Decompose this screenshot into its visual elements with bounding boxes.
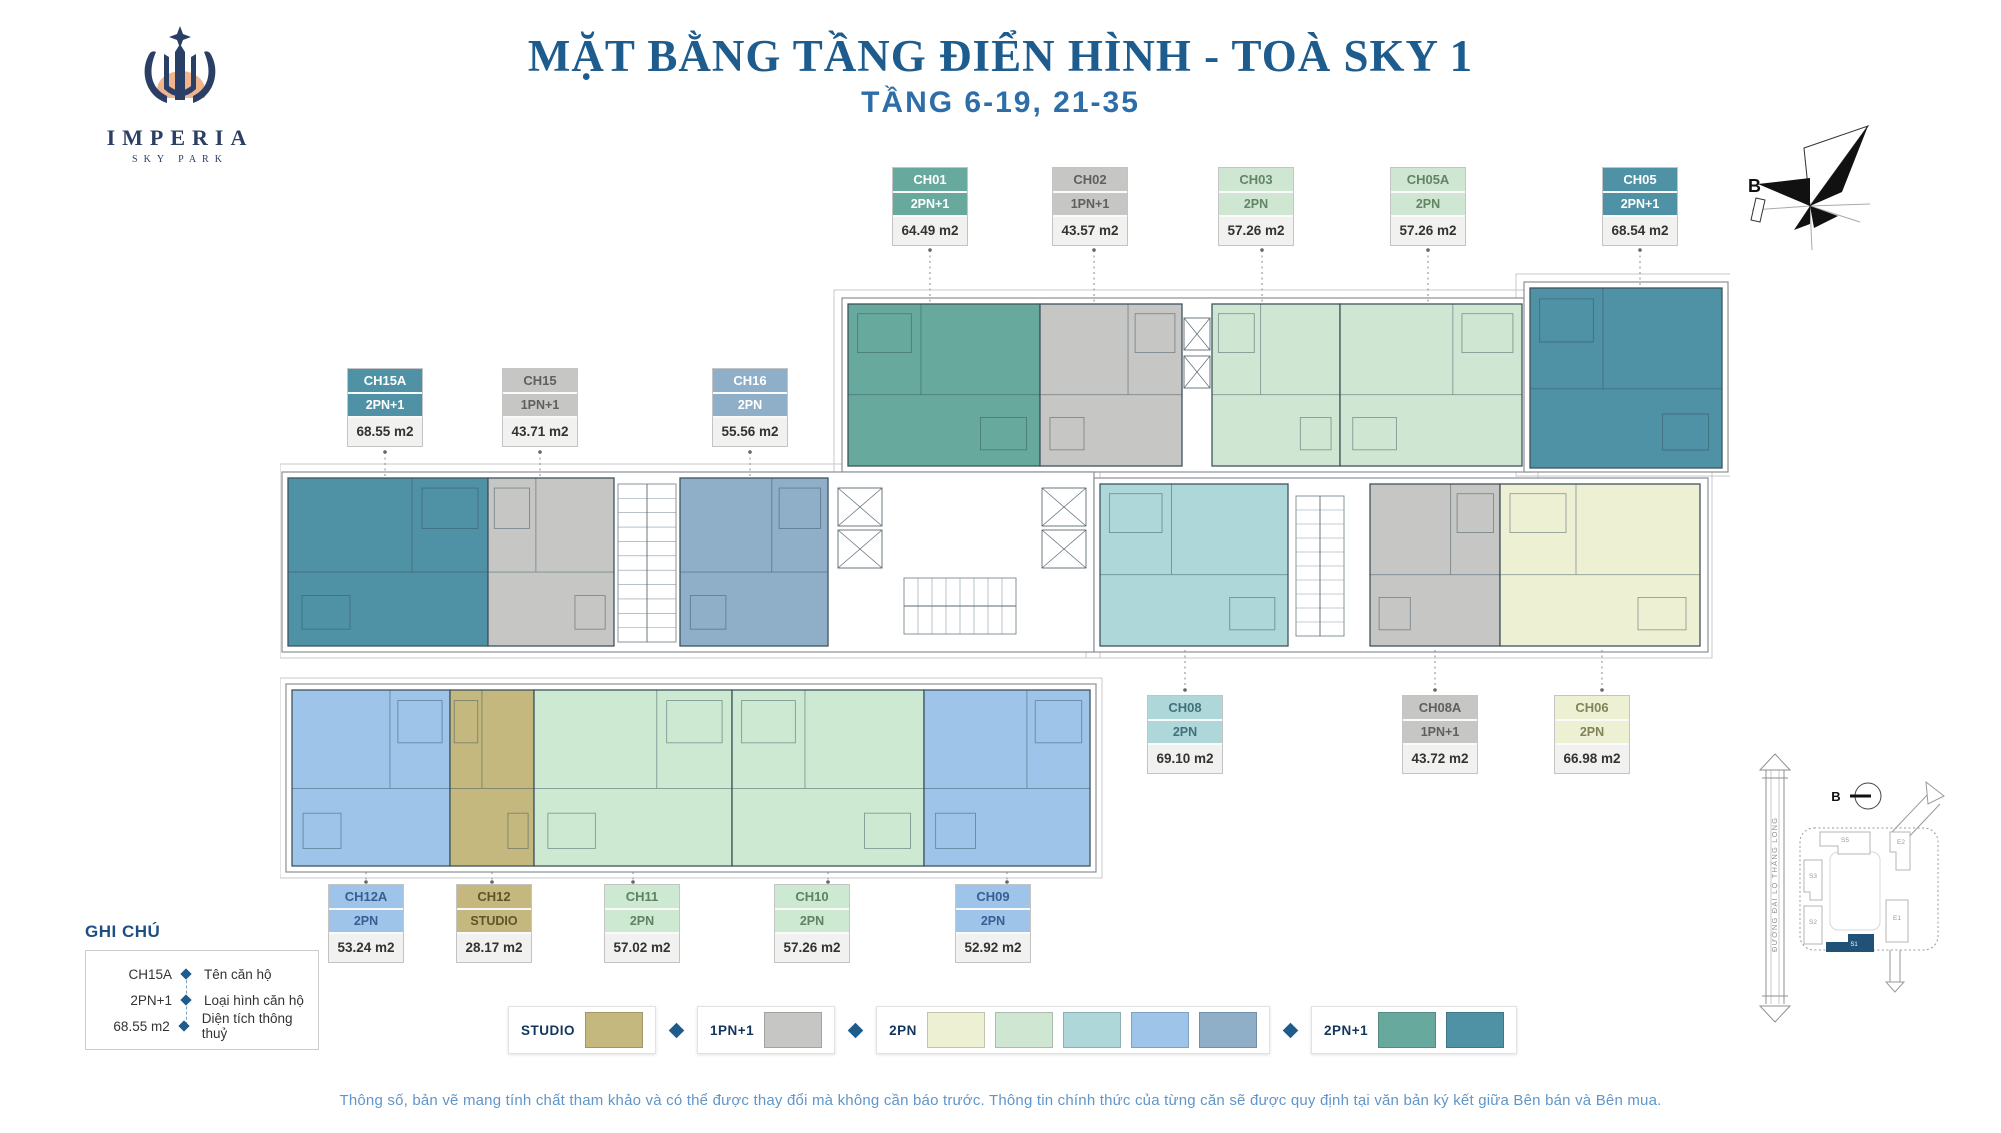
legend-note-label: Diện tích thông thuỷ [202,1011,318,1041]
unit-label-CH16: CH162PN55.56 m2 [712,368,788,447]
site-podium [1830,852,1880,930]
plan-unit-CH10 [732,690,924,866]
svg-text:S3: S3 [1809,873,1817,880]
leader-dot [748,450,752,454]
compass-pointer [1751,198,1765,222]
plan-unit-CH09 [924,690,1090,866]
unit-type: 2PN+1 [348,392,422,416]
unit-code: CH08 [1148,696,1222,719]
unit-type: 1PN+1 [1403,719,1477,743]
unit-type: 2PN [1555,719,1629,743]
plan-unit-CH01 [848,304,1040,466]
legend-group-label: 1PN+1 [710,1023,754,1038]
unit-label-CH11: CH112PN57.02 m2 [604,884,680,963]
compass-rose: B [1748,118,1878,258]
legend-note-value: 68.55 m2 [100,1019,170,1034]
page-title: MẶT BẰNG TẦNG ĐIỂN HÌNH - TOÀ SKY 1 [0,30,2001,82]
legend-notes: GHI CHÚ CH15A Tên căn hộ 2PN+1 Loại hình… [85,922,319,1050]
legend-group-2pn: 2PN [876,1006,1270,1054]
legend-group-label: 2PN+1 [1324,1023,1368,1038]
legend-note-label: Tên căn hộ [204,967,272,982]
unit-type: 2PN [605,908,679,932]
plan-unit-CH15 [488,478,614,646]
legend-color-swatch [1378,1012,1436,1048]
plan-unit-CH08A [1370,484,1500,646]
unit-label-CH06: CH062PN66.98 m2 [1554,695,1630,774]
plan-unit-CH06 [1500,484,1700,646]
logo-subtext: SKY PARK [95,154,265,165]
diamond-separator-icon [1283,1022,1299,1038]
site-road-label: ĐƯỜNG ĐẠI LỘ THĂNG LONG [1770,817,1779,952]
legend-color-swatch [1131,1012,1189,1048]
unit-type: 2PN [956,908,1030,932]
unit-label-CH05: CH052PN+168.54 m2 [1602,167,1678,246]
unit-area: 66.98 m2 [1555,743,1629,773]
diamond-separator-icon [848,1022,864,1038]
unit-code: CH03 [1219,168,1293,191]
legend-notes-box: CH15A Tên căn hộ 2PN+1 Loại hình căn hộ … [85,950,319,1050]
plan-unit-CH02 [1040,304,1182,466]
compass-north-label: B [1748,176,1761,196]
unit-label-CH12: CH12STUDIO28.17 m2 [456,884,532,963]
legend-color-swatch [1063,1012,1121,1048]
legend-notes-title: GHI CHÚ [85,922,319,942]
unit-area: 57.26 m2 [1219,215,1293,245]
unit-type: 1PN+1 [1053,191,1127,215]
unit-code: CH09 [956,885,1030,908]
plan-unit-CH15A [288,478,488,646]
compass-w-blade [1758,178,1810,206]
legend-color-swatch [1446,1012,1504,1048]
plan-unit-CH08 [1100,484,1288,646]
site-buildings [1804,832,1910,944]
floorplan-page: { "logo": { "brand": "IMPERIA", "sub": "… [0,0,2001,1133]
unit-area: 57.26 m2 [775,932,849,962]
unit-type: 2PN [1391,191,1465,215]
leader-dot [1260,248,1264,252]
unit-area: 69.10 m2 [1148,743,1222,773]
legend-group-1pnplus1: 1PN+1 [697,1006,835,1054]
unit-area: 68.55 m2 [348,416,422,446]
legend-group-studio: STUDIO [508,1006,656,1054]
unit-label-CH08: CH082PN69.10 m2 [1147,695,1223,774]
leader-dot [383,450,387,454]
unit-code: CH05 [1603,168,1677,191]
unit-area: 57.26 m2 [1391,215,1465,245]
unit-label-CH12A: CH12A2PN53.24 m2 [328,884,404,963]
svg-text:S5: S5 [1841,837,1849,844]
unit-code: CH02 [1053,168,1127,191]
plan-unit-CH05A [1340,304,1522,466]
leader-dot [1183,688,1187,692]
unit-code: CH06 [1555,696,1629,719]
unit-area: 52.92 m2 [956,932,1030,962]
diamond-bullet-icon [180,968,191,979]
unit-type: 2PN+1 [1603,191,1677,215]
unit-type: 1PN+1 [503,392,577,416]
disclaimer-text: Thông số, bản vẽ mang tính chất tham khả… [0,1092,2001,1109]
legend-color-swatch [585,1012,643,1048]
plan-unit-CH12 [450,690,534,866]
plan-unit-CH03 [1212,304,1340,466]
plan-unit-CH11 [534,690,732,866]
leader-dot [1433,688,1437,692]
legend-note-value: CH15A [100,967,172,982]
legend-color-swatch [995,1012,1053,1048]
unit-label-CH05A: CH05A2PN57.26 m2 [1390,167,1466,246]
unit-type: 2PN [713,392,787,416]
legend-note-row: CH15A Tên căn hộ [100,961,318,987]
unit-area: 68.54 m2 [1603,215,1677,245]
unit-code: CH08A [1403,696,1477,719]
unit-type: STUDIO [457,908,531,932]
site-map: ĐƯỜNG ĐẠI LỘ THĂNG LONG S5 E2 S3 S2 E1 S… [1740,752,1990,1027]
color-legend: STUDIO1PN+12PN2PN+1 [508,1006,1517,1054]
svg-text:S2: S2 [1809,919,1817,926]
plan-unit-CH16 [680,478,828,646]
unit-area: 43.72 m2 [1403,743,1477,773]
plan-unit-CH12A [292,690,450,866]
unit-type: 2PN+1 [893,191,967,215]
unit-area: 55.56 m2 [713,416,787,446]
unit-code: CH12 [457,885,531,908]
unit-area: 43.71 m2 [503,416,577,446]
site-building-s1-label: S1 [1850,942,1858,948]
unit-label-CH15A: CH15A2PN+168.55 m2 [347,368,423,447]
unit-area: 43.57 m2 [1053,215,1127,245]
leader-dot [1638,248,1642,252]
leader-dot [928,248,932,252]
svg-text:E1: E1 [1893,915,1901,922]
unit-code: CH15 [503,369,577,392]
unit-type: 2PN [775,908,849,932]
unit-area: 53.24 m2 [329,932,403,962]
unit-code: CH11 [605,885,679,908]
unit-area: 28.17 m2 [457,932,531,962]
diamond-bullet-icon [178,1020,189,1031]
unit-label-CH09: CH092PN52.92 m2 [955,884,1031,963]
legend-note-row: 2PN+1 Loại hình căn hộ [100,987,318,1013]
unit-label-CH02: CH021PN+143.57 m2 [1052,167,1128,246]
unit-code: CH15A [348,369,422,392]
unit-code: CH05A [1391,168,1465,191]
site-road-ne [1886,782,1944,992]
diamond-bullet-icon [180,994,191,1005]
compass-s-blade [1794,206,1810,230]
unit-label-CH01: CH012PN+164.49 m2 [892,167,968,246]
legend-group-label: STUDIO [521,1023,575,1038]
unit-code: CH10 [775,885,849,908]
unit-label-CH03: CH032PN57.26 m2 [1218,167,1294,246]
svg-text:E2: E2 [1897,839,1905,846]
unit-code: CH01 [893,168,967,191]
legend-group-label: 2PN [889,1023,917,1038]
plan-unit-CH05 [1530,288,1722,468]
diamond-separator-icon [669,1022,685,1038]
unit-type: 2PN [1148,719,1222,743]
leader-dot [538,450,542,454]
unit-label-CH10: CH102PN57.26 m2 [774,884,850,963]
legend-color-swatch [927,1012,985,1048]
unit-code: CH16 [713,369,787,392]
page-subtitle: TẦNG 6-19, 21-35 [0,86,2001,120]
leader-dot [1600,688,1604,692]
unit-type: 2PN [1219,191,1293,215]
legend-note-label: Loại hình căn hộ [204,993,304,1008]
compass-se-blade [1810,206,1838,228]
site-compass-label: B [1831,789,1840,804]
legend-group-2pnplus1: 2PN+1 [1311,1006,1517,1054]
logo-wordmark: IMPERIA [95,125,265,151]
unit-code: CH12A [329,885,403,908]
legend-color-swatch [764,1012,822,1048]
legend-note-row: 68.55 m2 Diện tích thông thuỷ [100,1013,318,1039]
legend-note-value: 2PN+1 [100,993,172,1008]
leader-dot [1092,248,1096,252]
unit-type: 2PN [329,908,403,932]
unit-area: 64.49 m2 [893,215,967,245]
legend-color-swatch [1199,1012,1257,1048]
unit-label-CH08A: CH08A1PN+143.72 m2 [1402,695,1478,774]
unit-area: 57.02 m2 [605,932,679,962]
floorplan-drawing [280,200,1730,910]
unit-label-CH15: CH151PN+143.71 m2 [502,368,578,447]
leader-dot [1426,248,1430,252]
